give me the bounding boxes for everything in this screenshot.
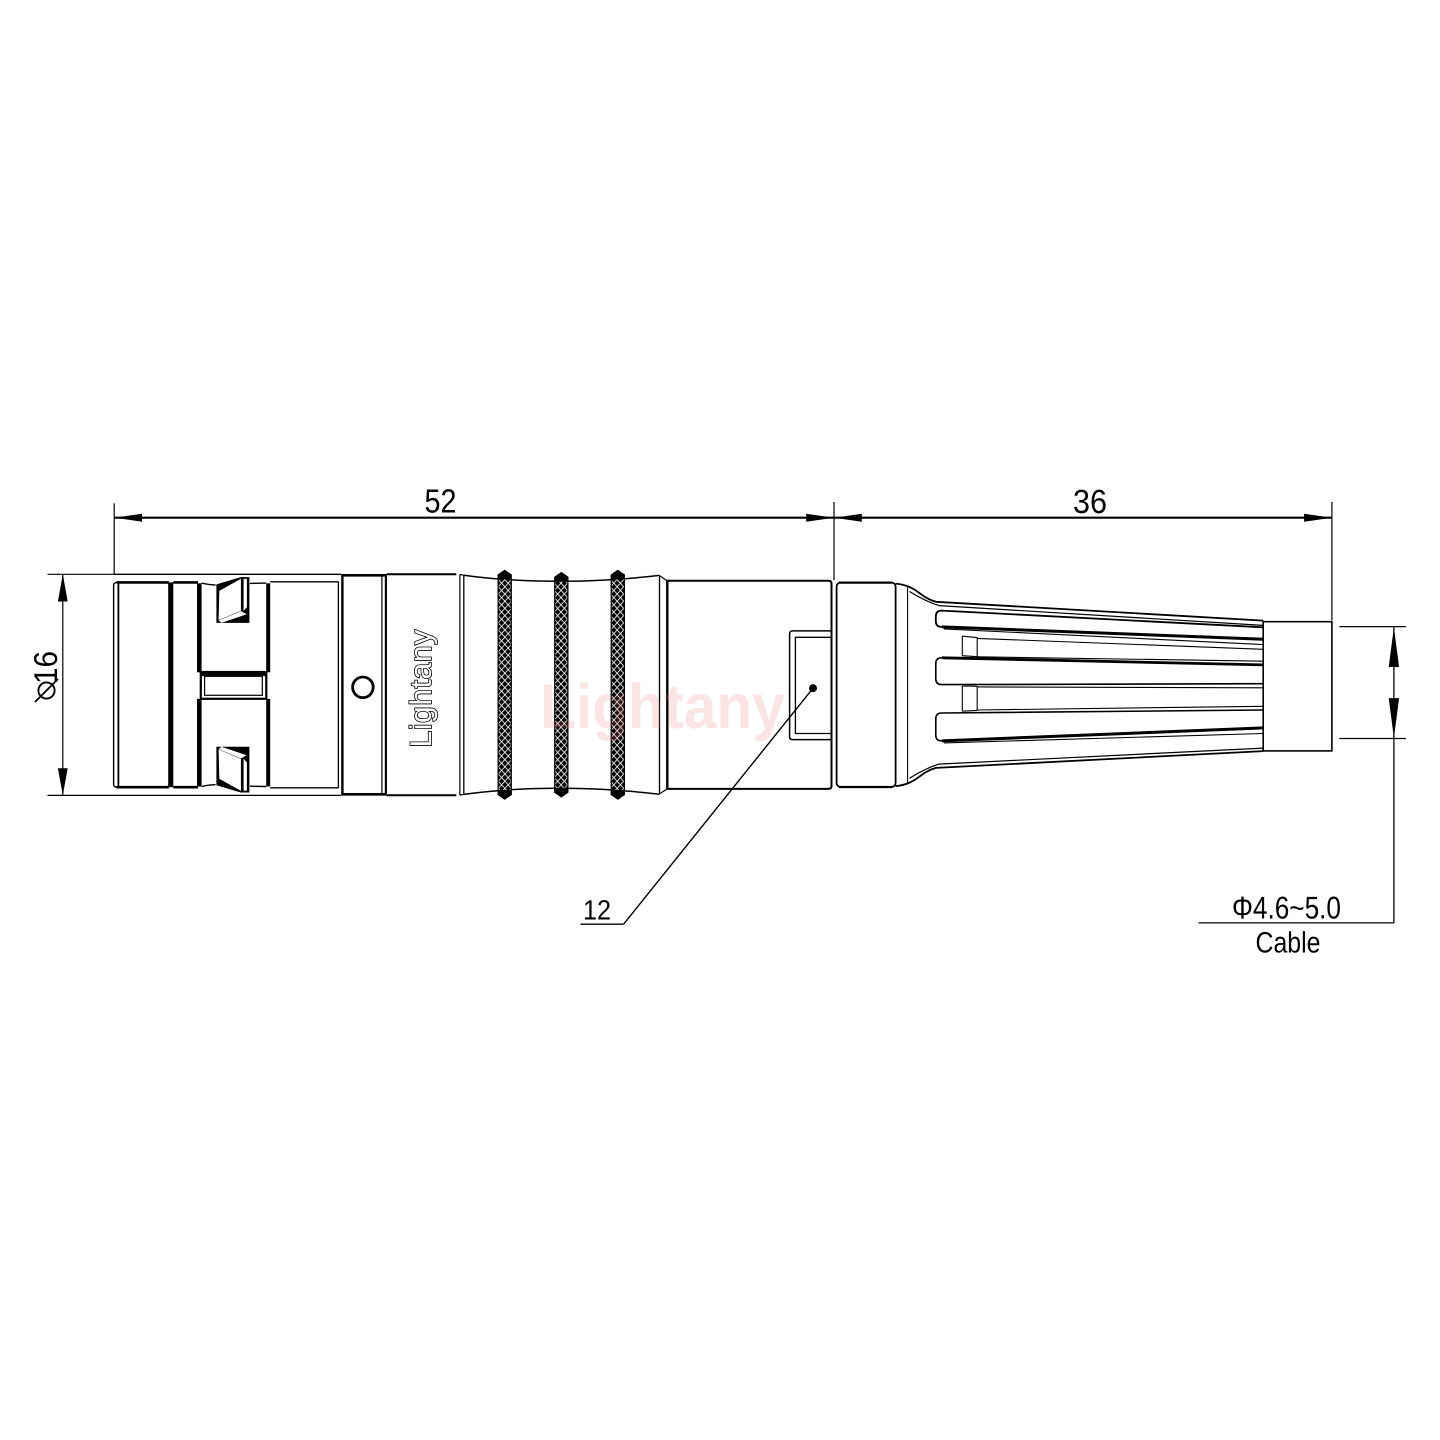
svg-text:Lightany: Lightany [540, 672, 785, 742]
svg-text:12: 12 [583, 895, 611, 926]
svg-text:Cable: Cable [1256, 926, 1321, 959]
svg-text:Φ4.6~5.0: Φ4.6~5.0 [1232, 889, 1341, 925]
svg-text:16: 16 [27, 651, 64, 684]
svg-text:36: 36 [1073, 484, 1107, 521]
svg-text:Lightany: Lightany [405, 629, 438, 747]
svg-text:52: 52 [425, 484, 457, 521]
